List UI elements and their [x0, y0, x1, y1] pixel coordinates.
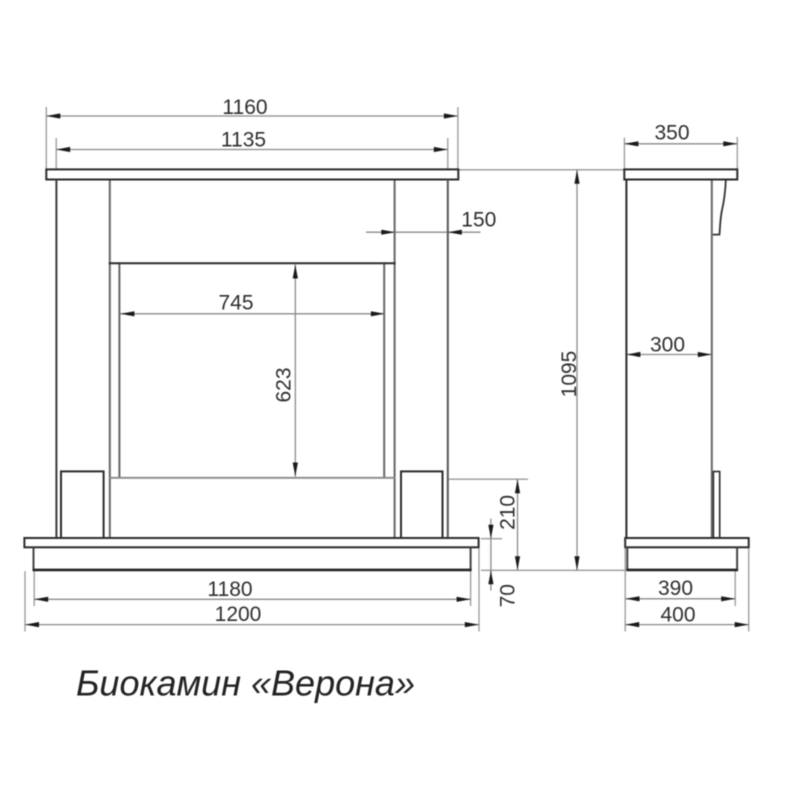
svg-text:1135: 1135	[221, 129, 266, 152]
svg-text:745: 745	[218, 292, 253, 315]
svg-text:400: 400	[660, 604, 695, 627]
svg-text:1160: 1160	[222, 96, 267, 119]
svg-text:1095: 1095	[558, 351, 581, 398]
svg-text:350: 350	[654, 122, 689, 145]
svg-text:1200: 1200	[215, 603, 262, 626]
svg-text:Биокамин «Верона»: Биокамин «Верона»	[76, 663, 415, 704]
svg-text:300: 300	[650, 334, 685, 357]
svg-text:210: 210	[496, 495, 519, 530]
svg-text:70: 70	[496, 584, 519, 607]
svg-text:150: 150	[461, 208, 496, 231]
svg-text:1180: 1180	[207, 578, 252, 601]
svg-text:390: 390	[658, 577, 693, 600]
svg-text:623: 623	[273, 367, 296, 402]
